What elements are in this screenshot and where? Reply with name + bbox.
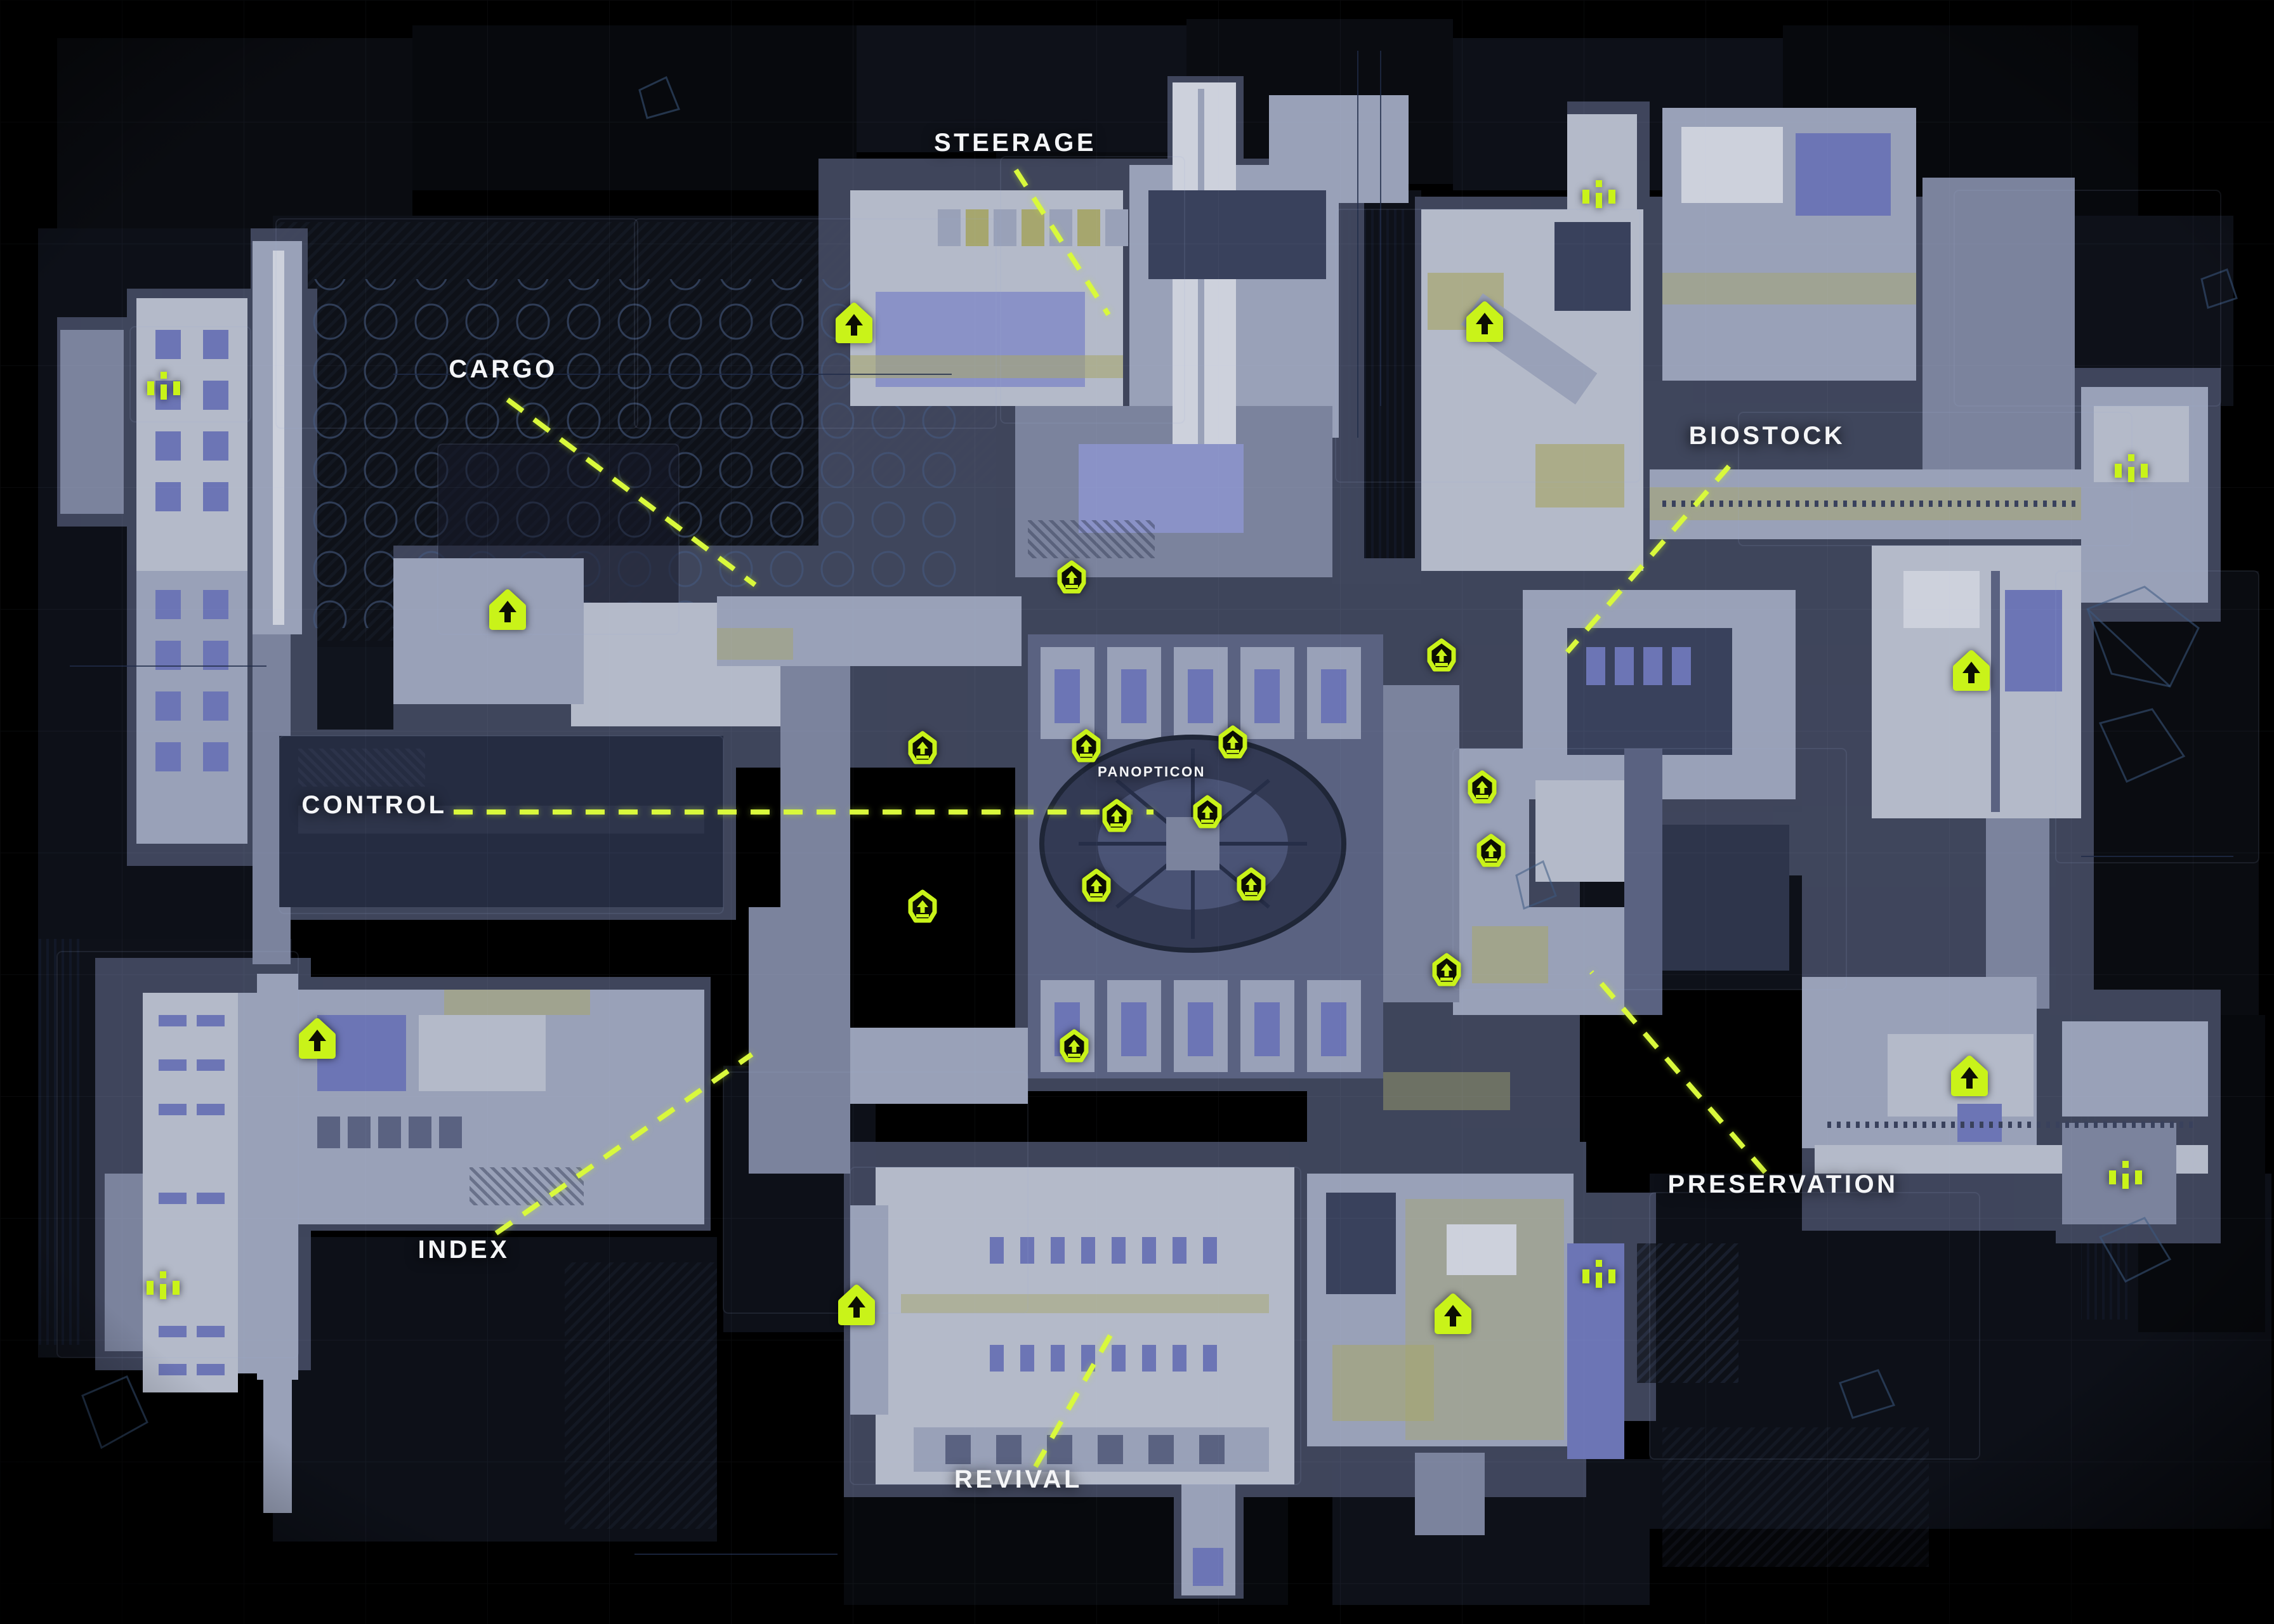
- hatch-marker[interactable]: [910, 892, 935, 920]
- zone-label-preservation: PRESERVATION: [1668, 1170, 1898, 1198]
- hatch-marker[interactable]: [1195, 797, 1219, 826]
- zone-label-steerage: STEERAGE: [934, 129, 1096, 157]
- house-arrow-icon: [1084, 871, 1108, 900]
- house-arrow-icon: [910, 733, 935, 762]
- hatch-marker[interactable]: [1074, 731, 1098, 760]
- house-arrow-icon: [910, 892, 935, 920]
- house-arrow-icon: [1062, 1031, 1086, 1060]
- hatch-marker[interactable]: [910, 733, 935, 762]
- zone-label-biostock: BIOSTOCK: [1689, 422, 1845, 450]
- hatch-marker[interactable]: [1239, 870, 1263, 898]
- house-arrow-icon: [1105, 801, 1129, 830]
- house-arrow-icon: [1195, 797, 1219, 826]
- area-label-panopticon: PANOPTICON: [1098, 764, 1206, 780]
- hatch-marker[interactable]: [1060, 563, 1084, 591]
- zone-label-index: INDEX: [418, 1236, 510, 1264]
- house-arrow-icon: [1221, 728, 1245, 756]
- zone-label-revival: REVIVAL: [954, 1465, 1082, 1493]
- house-arrow-icon: [1239, 870, 1263, 898]
- house-arrow-icon: [1435, 955, 1459, 984]
- station-map-canvas: STEERAGECARGOBIOSTOCKCONTROLINDEXPRESERV…: [0, 0, 2274, 1624]
- hatch-marker[interactable]: [1062, 1031, 1086, 1060]
- house-arrow-icon: [1429, 641, 1454, 669]
- house-arrow-icon: [1470, 773, 1494, 801]
- hatch-marker[interactable]: [1105, 801, 1129, 830]
- zone-label-cargo: CARGO: [449, 355, 557, 383]
- hatch-marker[interactable]: [1470, 773, 1494, 801]
- house-arrow-icon: [1479, 836, 1503, 865]
- hatch-marker[interactable]: [1435, 955, 1459, 984]
- hatch-marker[interactable]: [1221, 728, 1245, 756]
- hatch-marker[interactable]: [1084, 871, 1108, 900]
- house-arrow-icon: [1060, 563, 1084, 591]
- zone-label-control: CONTROL: [301, 791, 447, 819]
- house-arrow-icon: [1074, 731, 1098, 760]
- hatch-marker[interactable]: [1479, 836, 1503, 865]
- hatch-marker[interactable]: [1429, 641, 1454, 669]
- station-map[interactable]: STEERAGECARGOBIOSTOCKCONTROLINDEXPRESERV…: [0, 0, 2274, 1624]
